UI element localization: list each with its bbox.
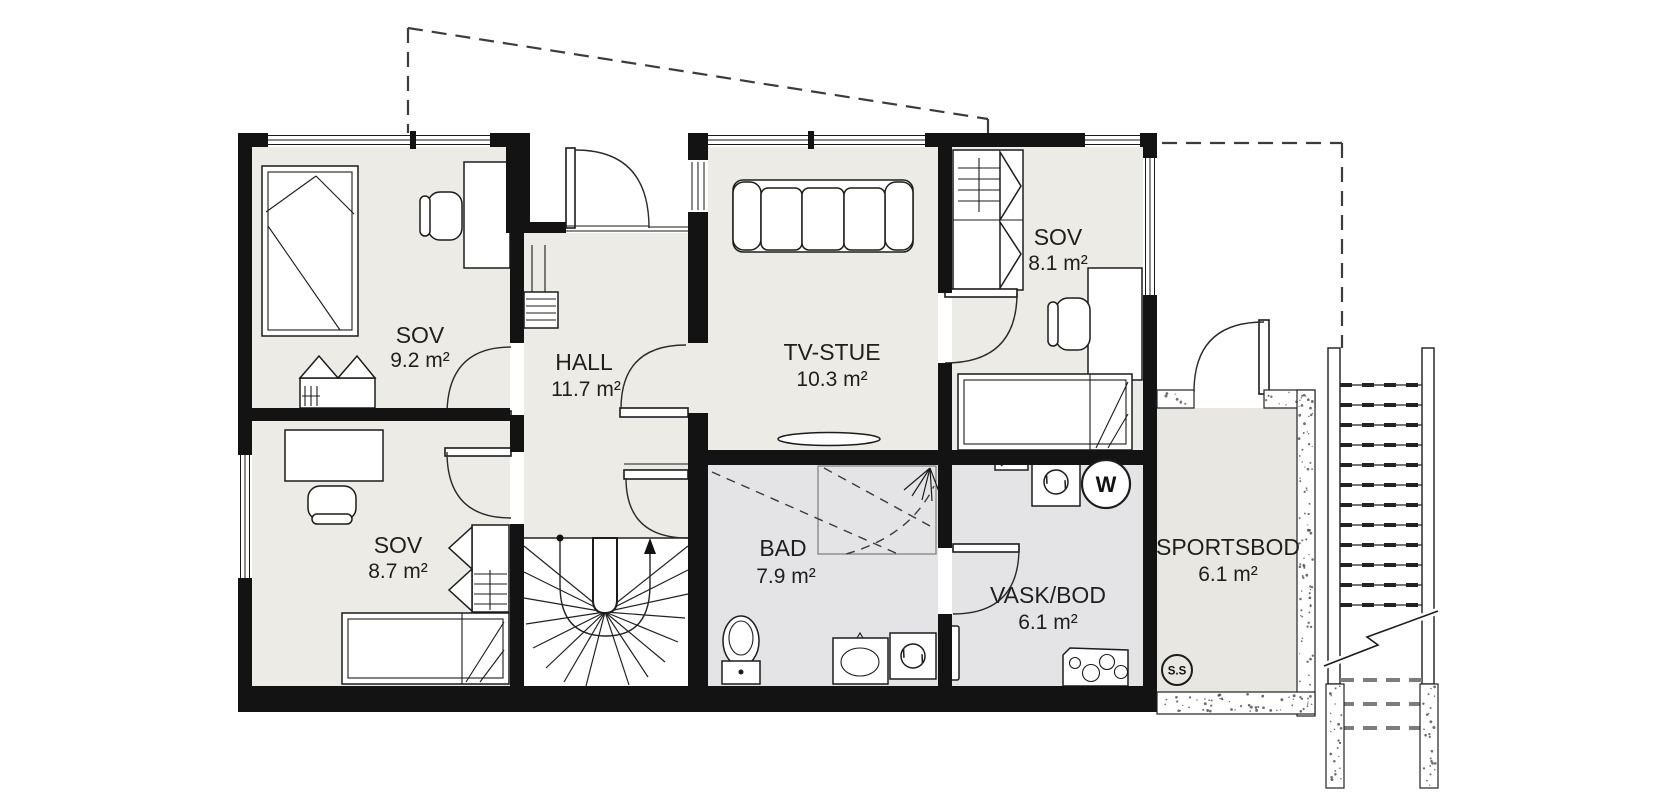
laundry-sink-unit (1063, 648, 1128, 686)
window-sov-8-7-left (238, 455, 252, 578)
floorplan-page: W S.S SOV 9.2 m² HALL 11.7 m² TV-STUE 10… (0, 0, 1670, 800)
room-label-sov-8-1: SOV (1034, 224, 1083, 250)
room-area-tv-stue: 10.3 m² (796, 368, 867, 391)
desk (464, 162, 510, 268)
desk-chair (1048, 298, 1090, 350)
washing-machine (890, 633, 936, 679)
room-area-vask-bod: 6.1 m² (1018, 611, 1078, 634)
room-label-tv-stue: TV-STUE (783, 339, 880, 365)
toilet (722, 616, 760, 684)
bed (958, 374, 1132, 450)
sofa-cushion (761, 188, 802, 250)
tv-bench (778, 433, 880, 446)
concrete-post (1420, 684, 1438, 788)
washing-machine (1032, 458, 1080, 506)
hidden-treads (1340, 680, 1422, 728)
window-porch (688, 160, 708, 212)
stringer-right (1422, 348, 1434, 684)
floorplan-drawing: W S.S SOV 9.2 m² HALL 11.7 m² TV-STUE 10… (0, 0, 1670, 800)
sofa-armrest-left (733, 182, 761, 250)
sofa (733, 180, 913, 252)
room-area-sov-8-1: 8.1 m² (1028, 252, 1088, 275)
room-area-hall: 11.7 m² (551, 378, 621, 401)
door-sportsbod (1194, 320, 1269, 394)
wardrobe (953, 150, 1023, 290)
bed (342, 613, 509, 684)
bathroom-sink (833, 633, 888, 684)
water-heater-marker: W (1082, 460, 1130, 508)
stringer-left (1328, 348, 1340, 684)
room-area-sportsbod: 6.1 m² (1198, 563, 1258, 586)
room-label-hall: HALL (555, 349, 613, 375)
window-sov-8-1-right (1143, 158, 1157, 295)
window-sov-8-1-top (1085, 133, 1140, 147)
desk-chair (308, 486, 356, 524)
sofa-cushion (802, 188, 844, 250)
window-tv-stue (708, 131, 925, 149)
ss-marker: S.S (1162, 655, 1192, 685)
room-label-sov-8-7: SOV (374, 532, 423, 558)
room-label-bad: BAD (759, 535, 806, 561)
window-sov-9-2 (268, 131, 490, 149)
room-label-sov-9-2: SOV (396, 322, 445, 348)
room-area-sov-9-2: 9.2 m² (390, 349, 450, 372)
concrete-post (1326, 684, 1344, 788)
ss-label: S.S (1168, 666, 1187, 678)
sofa-armrest-right (885, 182, 913, 250)
exterior-staircase (1324, 348, 1438, 788)
stair-spine (593, 538, 617, 613)
desk (285, 430, 383, 481)
desk-chair (420, 192, 462, 240)
ext-stair-treads (1340, 385, 1422, 605)
entry-porch (530, 133, 688, 233)
bed (262, 166, 358, 336)
desk (1088, 268, 1142, 380)
room-area-bad: 7.9 m² (756, 565, 816, 588)
sofa-cushion (844, 188, 885, 250)
water-heater-label: W (1096, 472, 1117, 497)
room-label-vask-bod: VASK/BOD (990, 582, 1106, 608)
room-area-sov-8-7: 8.7 m² (368, 560, 428, 583)
room-label-sportsbod: SPORTSBOD (1156, 534, 1300, 560)
